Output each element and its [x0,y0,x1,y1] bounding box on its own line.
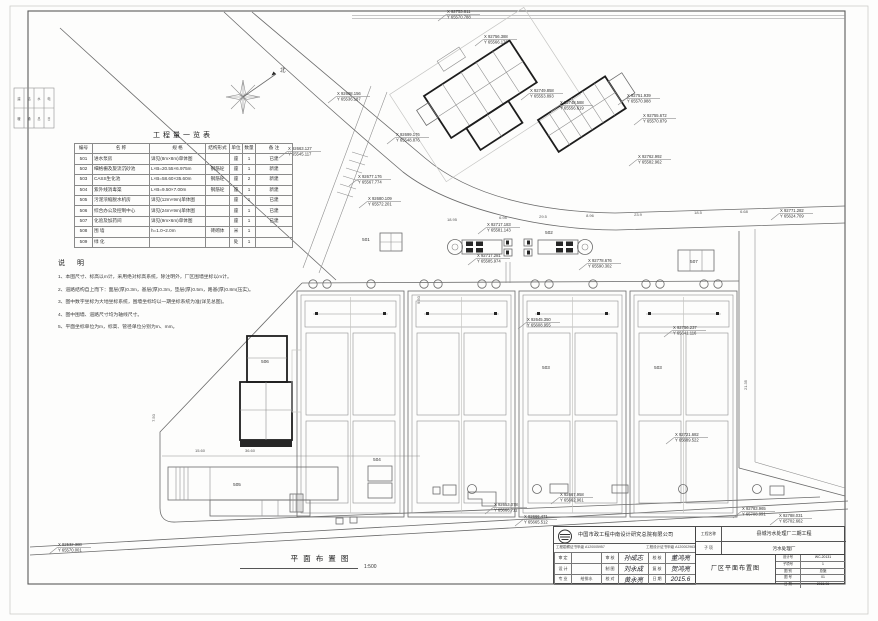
qt-cell: 座 [230,195,243,205]
svg-text:Y 65570.988: Y 65570.988 [627,99,651,104]
svg-text:Y 65570.879: Y 65570.879 [643,119,667,124]
svg-text:X 92653.078: X 92653.078 [494,502,518,507]
field-rows: 设计号WC-20131子项号1图 别总施图 号01日 期2015.06 [775,554,845,583]
structure-label: 507 [690,259,698,264]
qt-cell [256,237,293,247]
qt-row: 509绿 化处1 [75,237,293,247]
dimension-label: 18.5 [694,210,703,215]
qt-cell: 座 [230,206,243,216]
qt-cell: 绿 化 [93,237,150,247]
structure-label: 501 [362,237,370,242]
svg-text:X 92699.176: X 92699.176 [396,132,420,137]
qt-cell: 紫外线消毒渠 [93,185,150,195]
sig-value: 黄永亮 [619,574,649,585]
coordinate-callout: X 92653.078Y 65666.711 [485,502,527,514]
qt-header-cell: 编号 [75,144,93,154]
admin-building [240,336,301,447]
svg-text:X 92756.388: X 92756.388 [484,34,508,39]
coordinate-callout: X 92778.676Y 65590.302 [579,258,621,270]
qt-cell: 502 [75,164,93,174]
qt-row: 508围 墙h=1.0~2.0m砖砌体米1 [75,227,293,237]
qt-cell: 座 [230,164,243,174]
edge-cell-char: 水 [37,96,41,101]
dimension-label: 15.60 [195,448,206,453]
structure-label: 504 [373,457,381,462]
svg-text:X 92748.588: X 92748.588 [560,100,584,105]
dewatering-building [168,467,338,516]
qt-cell [256,227,293,237]
coordinate-callout: X 92680.109Y 65572.201 [359,196,401,208]
coordinate-callout: X 92698.156Y 65536.187 [328,91,370,103]
dimension-label: 9.50 [416,295,421,304]
svg-text:X 92771.282: X 92771.282 [780,208,804,213]
sig-value: 2015.6 [666,574,696,585]
field-value: 01 [801,575,845,581]
note-item: 3、图中数字坐标为大地坐标系统，围墙坐标均以一期坐标系统为准(详见总图)。 [58,297,348,310]
svg-text:Y 65553.893: Y 65553.893 [530,94,554,99]
qt-cell: 污泥浓缩脱水机房 [93,195,150,205]
sig-value [572,553,602,564]
drawing-caption: 平面布置图 [252,553,392,564]
qt-row: 505污泥浓缩脱水机房详见(12m×9m)单体图座1已建 [75,195,293,205]
qt-cell [206,237,230,247]
uv-channel [368,466,392,498]
svg-text:Y 65608.955: Y 65608.955 [527,323,551,328]
svg-text:X 92788.031: X 92788.031 [779,513,803,518]
qt-cell: 1 [243,154,256,164]
svg-text:X 92721.682: X 92721.682 [675,432,699,437]
svg-text:X 92666.471: X 92666.471 [524,514,548,519]
dimension-label: 8.96 [586,213,595,218]
qt-header-cell: 结构形式 [206,144,230,154]
note-item: 5、平面坐标单位为m，标高、管径单位分别为m、mm。 [58,322,348,335]
svg-text:X 92783.965: X 92783.965 [742,506,766,511]
qt-header-cell: 单位 [230,144,243,154]
qt-cell: 504 [75,185,93,195]
dimension-label: 21.35 [743,379,748,390]
qt-cell: 2 [243,175,256,185]
qt-cell: 已建 [256,154,293,164]
cass-tanks [297,280,737,517]
qt-cell: 座 [230,154,243,164]
svg-text:Y 65665.512: Y 65665.512 [524,520,548,525]
svg-text:Y 65702.662: Y 65702.662 [779,519,803,524]
qt-cell [206,206,230,216]
qt-cell: 围 墙 [93,227,150,237]
qt-header-cell: 备 注 [256,144,293,154]
qt-cell: 505 [75,195,93,205]
structure-label: 503 [542,365,550,370]
sig-label: 审 定 [555,553,572,564]
edge-cell-char: 电 [47,96,51,101]
coordinate-callout: X 92748.588Y 65556.619 [551,100,593,112]
sig-label: 设 计 [555,563,572,574]
svg-text:Y 65570.001: Y 65570.001 [58,548,82,553]
dimension-label: 23.9 [634,212,643,217]
qt-cell: L×B=58.60×35.60m [150,175,206,185]
qt-cell: 综合办公及控制中心 [93,206,150,216]
svg-text:Y 65708.991: Y 65708.991 [742,512,766,517]
svg-text:Y 65624.709: Y 65624.709 [780,214,804,219]
svg-text:Y 65590.302: Y 65590.302 [588,264,612,269]
sig-value: 孙成志 [619,553,649,564]
project-name: 县城污水处理厂二期工程 [722,527,846,541]
sig-label: 复 核 [649,563,666,574]
edge-cell-char: 通 [27,116,31,121]
qt-cell: 进水泵房 [93,154,150,164]
notes-list: 1、本图尺寸、标高以m计，采用绝对标高系统，除注明外，厂区围墙坐标以m计。2、道… [58,272,348,335]
qt-cell: CASS生化池 [93,175,150,185]
svg-text:X 92751.939: X 92751.939 [627,93,651,98]
edge-signature-table: 建结水电暖通总日 [14,88,54,128]
title-block: 中国市政工程中南设计研究总院有限公司 工程勘察证书甲级 A120005957 工… [553,526,845,584]
notes-block: 说 明 1、本图尺寸、标高以m计，采用绝对标高系统，除注明外，厂区围墙坐标以m计… [58,258,348,335]
field-value: WC-20131 [801,555,845,561]
main-road [224,12,845,230]
field-value: 2015.06 [801,582,845,588]
qt-cell: 详见(24m×9m)单体图 [150,206,206,216]
coordinate-callout: X 92755.672Y 65570.879 [634,113,676,125]
qt-row: 503CASS生化池L×B=58.60×35.60m钢筋砼座2新建 [75,175,293,185]
qt-cell: 503 [75,175,93,185]
qt-cell: 1 [243,206,256,216]
qt-cell: L×B=9.50×7.00m [150,185,206,195]
signature-grid-body: 审 定审 核孙成志校 核董鸿亮设 计制 图刘永成复 核贺鸿亮专 业给排水校 对黄… [555,553,696,585]
edge-cell-char: 暖 [17,116,21,121]
field-label: 设计号 [776,555,801,561]
coordinate-callout: X 92749.858Y 65553.893 [521,88,563,100]
coordinate-callout: X 92717.183Y 65581.143 [478,222,520,234]
dimension-label: 36.60 [245,448,256,453]
svg-text:Y 65566.176: Y 65566.176 [484,40,508,45]
project-name-label: 工程名称 [695,527,722,541]
qt-cell: 1 [243,237,256,247]
coordinate-callout: X 92771.282Y 65624.709 [771,208,813,220]
caption-scale: 1:500 [364,564,377,570]
svg-text:X 92677.176: X 92677.176 [358,174,382,179]
sig-label: 日 期 [649,574,666,585]
qt-cell: 米 [230,227,243,237]
svg-text:X 92778.676: X 92778.676 [588,258,612,263]
qt-cell: 508 [75,227,93,237]
field-label: 子项号 [776,562,801,568]
coordinate-callout: X 92762.992Y 65582.962 [629,154,671,166]
qt-row: 507化验及加药间详见(9m×6m)单体图座1已建 [75,216,293,226]
qt-cell: 详见(8m×8m)单体图 [150,154,206,164]
qt-cell: 1 [243,216,256,226]
coordinate-callout: X 92667.958Y 65662.961 [551,492,593,504]
qt-cell: 详见(12m×9m)单体图 [150,195,206,205]
field-value: 总施 [801,569,845,575]
qt-cell: 新建 [256,175,293,185]
qt-cell: 化验及加药间 [93,216,150,226]
cert-1: 工程勘察证书甲级 A120005957 [556,543,605,552]
svg-text:X 92749.858: X 92749.858 [530,88,554,93]
sig-value: 贺鸿亮 [666,563,696,574]
svg-text:Y 65567.774: Y 65567.774 [358,180,382,185]
qt-cell: 1 [243,164,256,174]
svg-text:X 92680.109: X 92680.109 [368,196,392,201]
qt-cell: 座 [230,175,243,185]
existing-building-2 [538,68,639,152]
qt-row: 502细格栅及旋流沉砂池L×B=20.55×6.975m钢筋砼座1新建 [75,164,293,174]
subitem-name: 污水处理厂 [722,541,846,554]
svg-text:X 92753.611: X 92753.611 [447,9,471,14]
structure-label: 503 [654,365,662,370]
quantity-table: 工程量一览表 编号名 称规 格结构形式单位数量备 注 501进水泵房详见(8m×… [74,130,292,248]
sig-value: 刘永成 [619,563,649,574]
north-arrow [243,74,276,97]
edge-cell-char: 日 [47,117,50,121]
svg-text:X 92755.672: X 92755.672 [643,113,667,118]
qt-cell: 1 [243,195,256,205]
svg-text:X 92667.958: X 92667.958 [560,492,584,497]
structure-label: 506 [261,359,269,364]
coordinate-callout: X 92721.682Y 65689.522 [666,432,708,444]
qt-header-cell: 数量 [243,144,256,154]
field-value: 1 [801,562,845,568]
qt-row: 504紫外线消毒渠L×B=9.50×7.00m钢筋砼座1新建 [75,185,293,195]
qt-cell: 钢筋砼 [206,185,230,195]
qt-cell: 1 [243,227,256,237]
qt-cell: 座 [230,216,243,226]
wind-rose: 北 [226,66,286,114]
qt-cell: 细格栅及旋流沉砂池 [93,164,150,174]
edge-cell-char: 总 [37,116,41,121]
field-label: 图 号 [776,575,801,581]
svg-text:X 92717.183: X 92717.183 [487,222,511,227]
company-name: 中国市政工程中南设计研究总院有限公司 [578,528,694,543]
qt-cell [206,195,230,205]
qt-cell: 507 [75,216,93,226]
svg-text:Y 65585.974: Y 65585.974 [477,259,501,264]
signature-grid: 审 定审 核孙成志校 核董鸿亮设 计制 图刘永成复 核贺鸿亮专 业给排水校 对黄… [554,552,696,585]
qt-cell: 1 [243,185,256,195]
north-label: 北 [280,66,286,74]
note-item: 2、道路结构自上而下：面层(厚)0.3m，基层(厚)0.3m，垫层(厚)0.5m… [58,285,348,298]
drawing-sheet: 建结水电暖通总日 [0,0,878,621]
dimension-label: 7.50 [151,413,156,422]
qt-cell: 509 [75,237,93,247]
svg-text:Y 65570.788: Y 65570.788 [447,15,471,20]
dimension-label: 29.5 [539,214,548,219]
note-item: 4、图中围墙、道路尺寸均为轴线尺寸。 [58,310,348,323]
caption-underline [240,568,358,569]
qt-cell: 新建 [256,164,293,174]
svg-text:X 92717.281: X 92717.281 [477,253,501,258]
qt-cell: 已建 [256,216,293,226]
qt-row: 506综合办公及控制中心详见(24m×9m)单体图座1已建 [75,206,293,216]
qt-cell: 钢筋砼 [206,164,230,174]
sig-label: 校 核 [649,553,666,564]
qt-cell [150,237,206,247]
svg-text:X 92698.156: X 92698.156 [337,91,361,96]
coordinate-callout: X 92756.388Y 65566.176 [475,34,517,46]
coordinate-callout: X 92699.176Y 65548.876 [387,132,429,144]
drawing-name: 厂区平面布置图 [695,554,775,583]
qt-cell: 新建 [256,185,293,195]
svg-text:X 92756.237: X 92756.237 [673,325,697,330]
qt-cell: L×B=20.55×6.975m [150,164,206,174]
qt-cell: 座 [230,185,243,195]
qt-cell [206,154,230,164]
certificates: 工程勘察证书甲级 A120005957 工程设计证书甲级 A120002963 [556,543,695,552]
qt-cell: 钢筋砼 [206,175,230,185]
svg-text:Y 65572.201: Y 65572.201 [368,202,392,207]
pump-station [380,233,402,251]
cert-2: 工程设计证书甲级 A120002963 [646,543,695,552]
svg-text:Y 65689.522: Y 65689.522 [675,438,699,443]
quantity-table-body: 501进水泵房详见(8m×8m)单体图座1已建502细格栅及旋流沉砂池L×B=2… [75,154,293,248]
grit-chamber-units [448,239,593,283]
svg-text:Y 65556.619: Y 65556.619 [560,106,584,111]
svg-text:Y 65548.876: Y 65548.876 [396,138,420,143]
coordinate-callout: X 92788.031Y 65702.662 [770,513,812,525]
svg-text:Y 65536.187: Y 65536.187 [337,97,361,102]
qt-cell: 砖砌体 [206,227,230,237]
edge-cell-char: 建 [17,96,21,101]
svg-text:Y 65582.962: Y 65582.962 [638,160,662,165]
subitem-label: 子 项 [695,541,722,554]
quantity-table-title: 工程量一览表 [74,130,292,140]
qt-cell: 已建 [256,195,293,205]
svg-text:X 92645.350: X 92645.350 [527,317,551,322]
coordinate-callout: X 92751.939Y 65570.988 [618,93,660,105]
qt-cell: 详见(9m×6m)单体图 [150,216,206,226]
structure-label: 505 [233,482,241,487]
qt-header-cell: 名 称 [93,144,150,154]
quantity-table-head: 编号名 称规 格结构形式单位数量备 注 [75,144,293,154]
structure-label: 502 [545,230,553,235]
sig-label: 审 核 [602,553,619,564]
sig-value [572,563,602,574]
sig-label: 专 业 [555,574,572,585]
sig-value: 给排水 [572,574,602,585]
qt-cell: 已建 [256,206,293,216]
qt-header-cell: 规 格 [150,144,206,154]
qt-cell: 处 [230,237,243,247]
coordinate-callout: X 92666.471Y 65665.512 [515,514,557,526]
note-item: 1、本图尺寸、标高以m计，采用绝对标高系统，除注明外，厂区围墙坐标以m计。 [58,272,348,285]
field-label: 日 期 [776,582,801,588]
svg-text:X 92762.992: X 92762.992 [638,154,662,159]
sig-value: 董鸿亮 [666,553,696,564]
qt-row: 501进水泵房详见(8m×8m)单体图座1已建 [75,154,293,164]
sig-label: 制 图 [602,563,619,574]
dimension-label: 6.98 [499,215,508,220]
edge-cell-char: 结 [27,96,30,101]
qt-cell [206,216,230,226]
coordinate-callout: X 92783.965Y 65708.991 [733,506,775,518]
svg-text:X 92532.388: X 92532.388 [58,542,82,547]
svg-text:Y 65662.961: Y 65662.961 [560,498,584,503]
dimension-label: 18.95 [447,217,458,222]
svg-text:Y 65666.711: Y 65666.711 [494,508,518,513]
field-label: 图 别 [776,569,801,575]
notes-title: 说 明 [58,258,348,268]
qt-cell: h=1.0~2.0m [150,227,206,237]
qt-cell: 506 [75,206,93,216]
svg-text:Y 65641.116: Y 65641.116 [673,331,697,336]
qt-cell: 501 [75,154,93,164]
svg-text:Y 65581.143: Y 65581.143 [487,228,511,233]
dimension-label: 6.68 [740,209,749,214]
sig-label: 校 对 [602,574,619,585]
